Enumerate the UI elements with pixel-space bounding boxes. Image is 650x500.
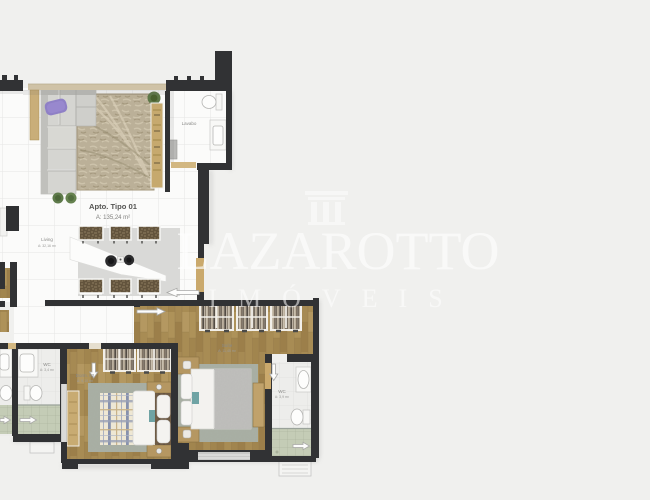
svg-text:A: 3,9 m²: A: 3,9 m² [275, 395, 290, 399]
svg-text:IMÓVEIS: IMÓVEIS [208, 284, 463, 313]
svg-text:A: 32,16 m²: A: 32,16 m² [38, 244, 57, 248]
svg-text:WC: WC [43, 362, 51, 367]
svg-text:Apto. Tipo 01: Apto. Tipo 01 [89, 202, 138, 211]
svg-text:LAZAROTTO: LAZAROTTO [177, 221, 500, 281]
svg-text:Living: Living [41, 237, 53, 242]
svg-text:A: 135,24 m²: A: 135,24 m² [96, 215, 130, 221]
svg-text:Suíte: Suíte [222, 343, 233, 348]
svg-text:A: 11,45 m²: A: 11,45 m² [218, 349, 237, 353]
svg-text:Lavabo: Lavabo [182, 121, 197, 126]
svg-text:Dorm. 02: Dorm. 02 [76, 373, 95, 378]
svg-text:WC: WC [278, 389, 286, 394]
svg-text:A: 3,4 m²: A: 3,4 m² [40, 368, 55, 372]
svg-text:A: 9,10 m²: A: 9,10 m² [77, 379, 94, 383]
